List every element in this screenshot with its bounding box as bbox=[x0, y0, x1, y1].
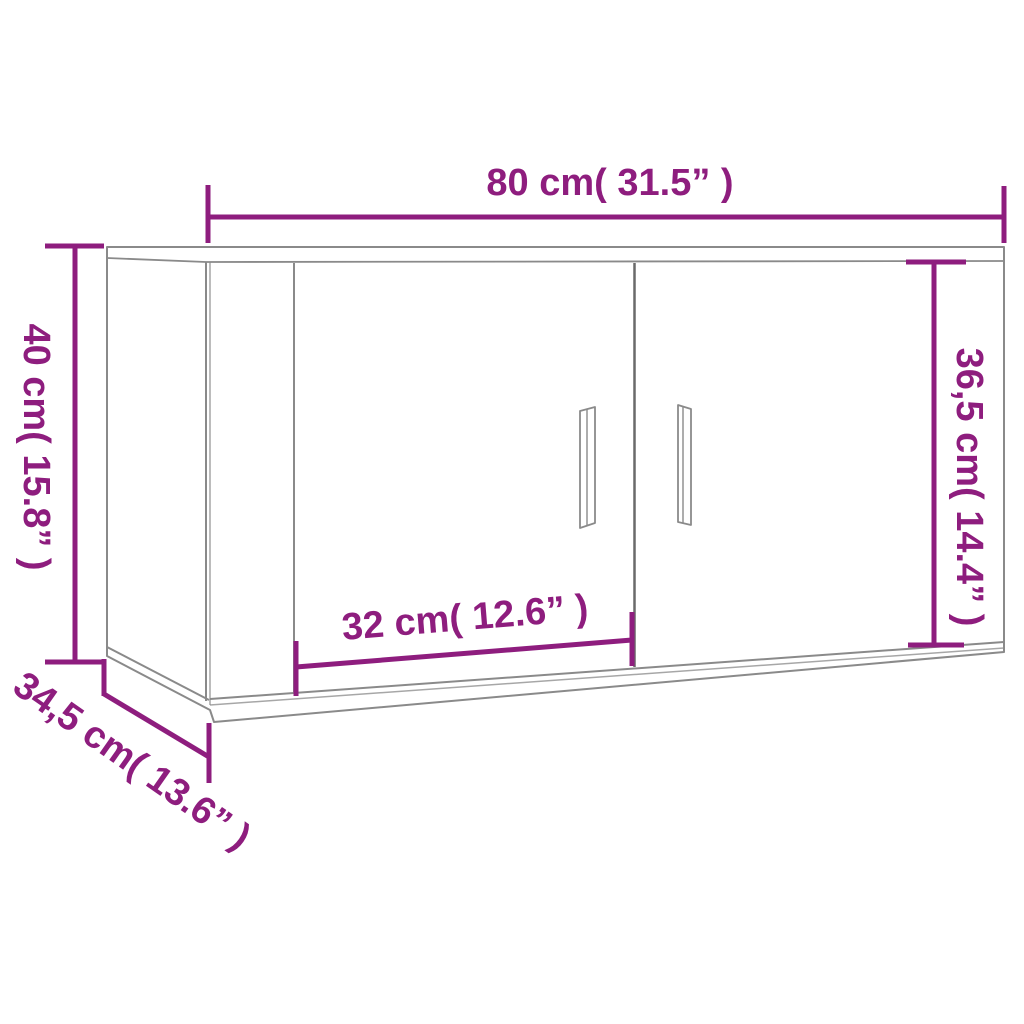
dimension-door-height-label: 36,5 cm( 14.4” ) bbox=[948, 348, 990, 627]
dimension-overall-height-label: 40 cm( 15.8” ) bbox=[15, 323, 57, 570]
handle-right-body bbox=[678, 405, 691, 525]
handle-right bbox=[678, 405, 691, 525]
handle-left bbox=[580, 407, 595, 528]
cabinet bbox=[107, 247, 1004, 722]
dimension-overall-width-label: 80 cm( 31.5” ) bbox=[486, 162, 733, 204]
diagram-canvas: 80 cm( 31.5” ) 40 cm( 15.8” ) 36,5 cm( 1… bbox=[0, 0, 1024, 1024]
product-dimension-diagram: 80 cm( 31.5” ) 40 cm( 15.8” ) 36,5 cm( 1… bbox=[0, 0, 1024, 1024]
